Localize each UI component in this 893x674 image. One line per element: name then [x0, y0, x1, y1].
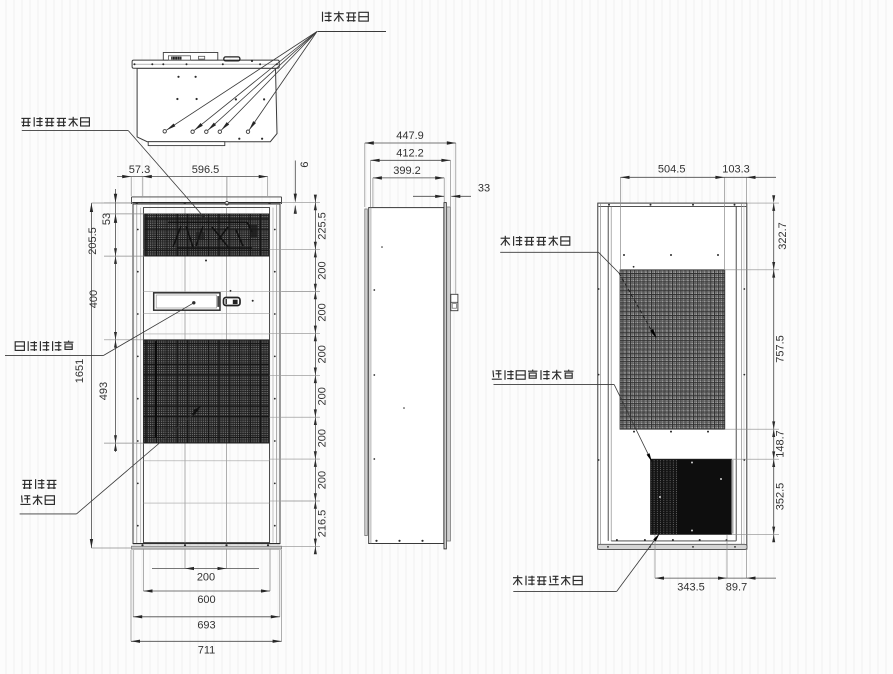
svg-text:200: 200	[197, 572, 215, 584]
svg-text:400: 400	[88, 290, 100, 308]
svg-text:322.7: 322.7	[777, 222, 789, 250]
svg-text:200: 200	[317, 303, 329, 321]
svg-text:200: 200	[317, 261, 329, 279]
svg-text:757.5: 757.5	[775, 335, 787, 363]
svg-text:504.5: 504.5	[658, 164, 686, 176]
svg-text:200: 200	[317, 429, 329, 447]
svg-text:200: 200	[317, 345, 329, 363]
svg-text:693: 693	[197, 620, 215, 632]
svg-text:216.5: 216.5	[317, 510, 329, 538]
svg-text:148.7: 148.7	[775, 430, 787, 458]
svg-text:711: 711	[198, 645, 216, 657]
svg-text:57.3: 57.3	[129, 164, 150, 176]
svg-text:447.9: 447.9	[396, 130, 424, 142]
svg-text:352.5: 352.5	[775, 483, 787, 511]
svg-text:412.2: 412.2	[396, 148, 424, 160]
svg-text:596.5: 596.5	[192, 164, 220, 176]
svg-text:89.7: 89.7	[726, 582, 747, 594]
svg-text:9: 9	[298, 161, 310, 167]
svg-text:53: 53	[101, 213, 113, 225]
svg-text:600: 600	[197, 594, 215, 606]
svg-text:493: 493	[98, 382, 110, 400]
svg-text:343.5: 343.5	[677, 582, 705, 594]
svg-text:200: 200	[317, 387, 329, 405]
svg-text:33: 33	[478, 183, 490, 195]
svg-text:225.5: 225.5	[317, 212, 329, 240]
svg-text:103.3: 103.3	[722, 164, 750, 176]
svg-text:200: 200	[317, 471, 329, 489]
svg-text:1651: 1651	[74, 359, 86, 383]
svg-text:205.5: 205.5	[87, 227, 99, 255]
svg-text:399.2: 399.2	[393, 165, 421, 177]
